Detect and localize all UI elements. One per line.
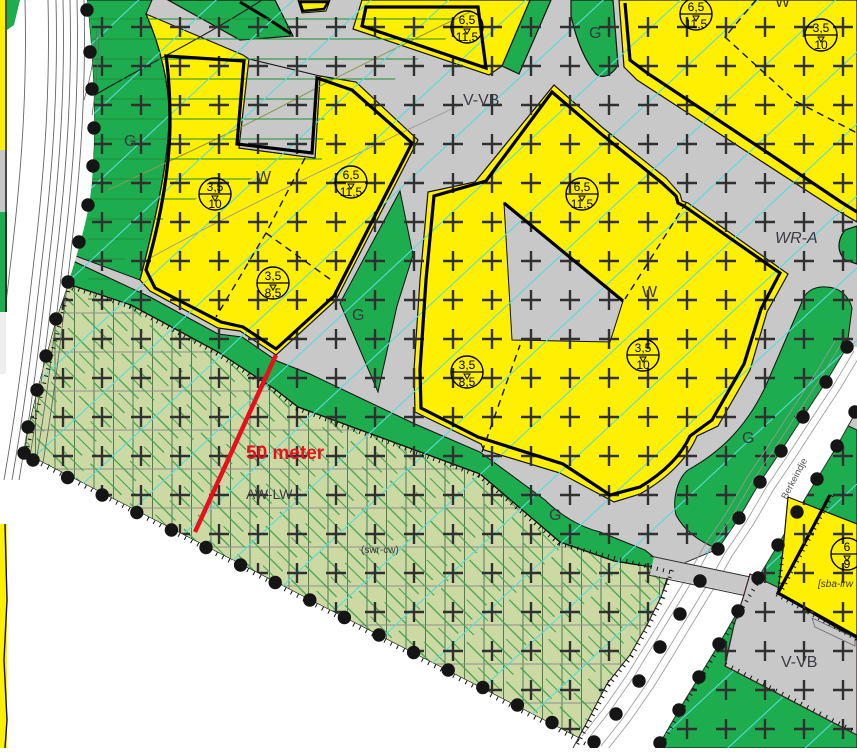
svg-text:V-VB: V-VB: [781, 654, 817, 671]
svg-text:6,5: 6,5: [459, 13, 476, 27]
svg-text:W: W: [256, 169, 272, 186]
svg-text:G: G: [124, 133, 136, 150]
svg-text:9: 9: [844, 557, 851, 571]
svg-text:10: 10: [208, 197, 222, 211]
svg-text:G: G: [742, 430, 754, 447]
svg-text:11,5: 11,5: [685, 17, 708, 31]
svg-text:3,5: 3,5: [207, 180, 224, 194]
svg-text:6: 6: [844, 540, 851, 554]
svg-text:8,5: 8,5: [265, 286, 282, 300]
svg-text:(swr-cw): (swr-cw): [361, 545, 399, 556]
svg-text:8,5: 8,5: [459, 375, 476, 389]
svg-text:V-VB: V-VB: [463, 92, 499, 109]
svg-text:WR-A: WR-A: [775, 230, 818, 247]
svg-text:3,5: 3,5: [265, 269, 282, 283]
svg-text:10: 10: [814, 38, 828, 52]
svg-text:W: W: [642, 284, 658, 301]
svg-text:11,5: 11,5: [456, 30, 479, 44]
svg-text:50 meter: 50 meter: [246, 443, 325, 464]
svg-text:G: G: [589, 25, 601, 42]
svg-text:G: G: [549, 507, 561, 524]
svg-text:[sba-lrw: [sba-lrw: [817, 579, 854, 590]
svg-text:AW-LW: AW-LW: [246, 486, 293, 502]
svg-text:6,5: 6,5: [574, 180, 591, 194]
svg-text:11,5: 11,5: [340, 185, 363, 199]
svg-text:3,5: 3,5: [635, 341, 652, 355]
svg-text:6,5: 6,5: [343, 168, 360, 182]
svg-text:6,5: 6,5: [688, 0, 705, 14]
svg-text:3,5: 3,5: [459, 358, 476, 372]
svg-text:11,5: 11,5: [571, 197, 594, 211]
svg-text:10: 10: [636, 358, 650, 372]
svg-text:W: W: [775, 0, 791, 11]
svg-text:G: G: [352, 307, 364, 324]
svg-text:3,5: 3,5: [813, 21, 830, 35]
